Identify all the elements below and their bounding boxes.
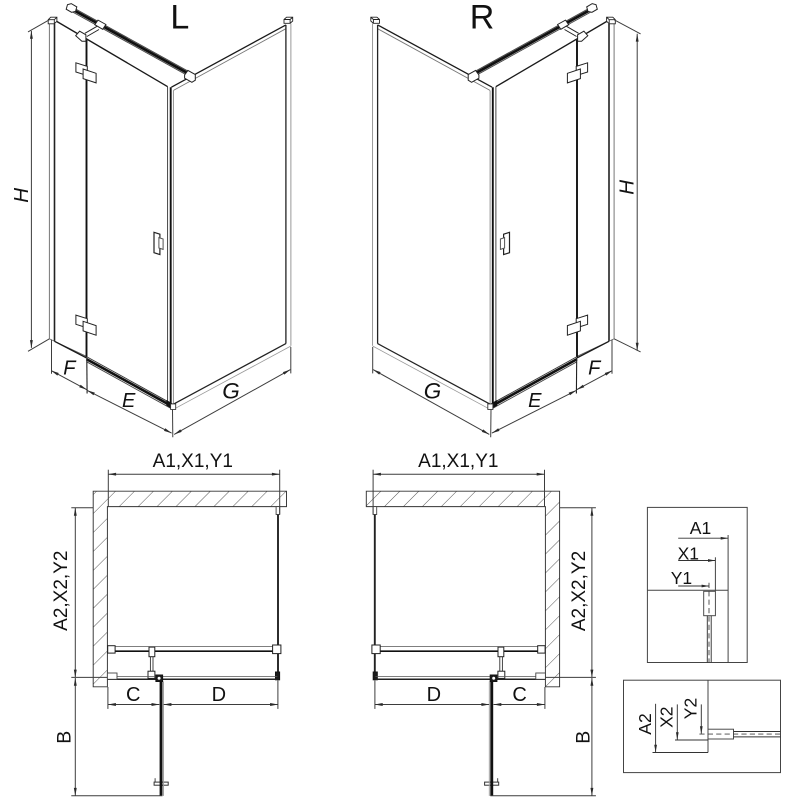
svg-text:H: H <box>615 180 638 195</box>
svg-text:A2,X2,Y2: A2,X2,Y2 <box>51 551 72 631</box>
svg-text:Y2: Y2 <box>681 698 701 719</box>
svg-text:A1,X1,Y1: A1,X1,Y1 <box>418 451 498 472</box>
svg-text:X2: X2 <box>656 706 676 727</box>
svg-text:A1: A1 <box>690 518 711 538</box>
svg-text:E: E <box>528 390 542 412</box>
svg-text:H: H <box>10 188 33 203</box>
svg-text:L: L <box>170 0 189 36</box>
svg-text:E: E <box>122 390 136 412</box>
svg-text:A1,X1,Y1: A1,X1,Y1 <box>153 451 233 472</box>
svg-text:C: C <box>126 684 140 706</box>
svg-text:A2,X2,Y2: A2,X2,Y2 <box>569 551 590 631</box>
svg-text:D: D <box>212 684 226 706</box>
svg-text:D: D <box>427 684 441 706</box>
svg-text:X1: X1 <box>678 543 699 563</box>
svg-text:G: G <box>222 378 240 403</box>
svg-text:F: F <box>588 358 602 380</box>
svg-text:B: B <box>572 731 594 744</box>
svg-text:A2: A2 <box>635 713 655 734</box>
svg-text:Y1: Y1 <box>671 568 692 588</box>
svg-text:F: F <box>63 358 77 380</box>
svg-text:B: B <box>54 731 76 744</box>
svg-text:C: C <box>512 684 526 706</box>
svg-text:R: R <box>470 0 495 36</box>
svg-text:G: G <box>424 378 442 403</box>
